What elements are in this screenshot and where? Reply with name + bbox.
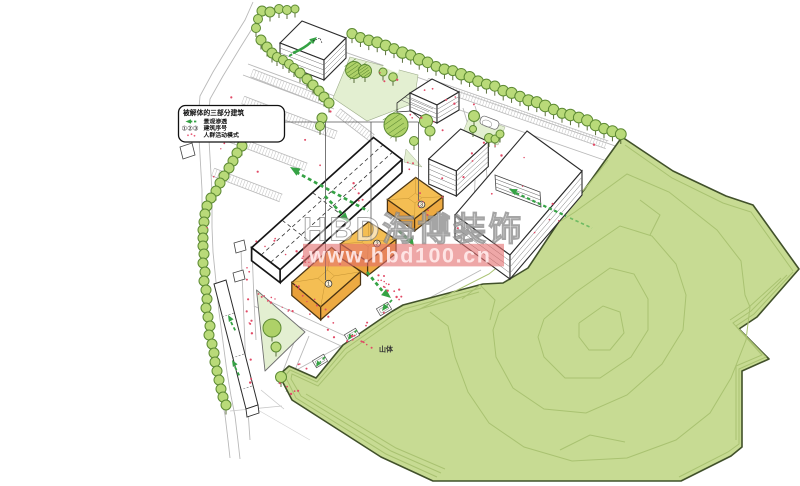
svg-text:3: 3	[420, 203, 423, 209]
svg-text:www.hbd100.cn: www.hbd100.cn	[308, 244, 491, 268]
svg-text:①②③: ①②③	[182, 125, 199, 132]
svg-text:人群活动模式: 人群活动模式	[204, 131, 239, 139]
svg-text:景观渗透: 景观渗透	[203, 118, 228, 126]
svg-text:建筑序号: 建筑序号	[203, 124, 228, 132]
svg-text:1: 1	[327, 282, 330, 288]
svg-text:被解体的三部分建筑: 被解体的三部分建筑	[183, 108, 244, 117]
svg-text:HBD海博装饰: HBD海博装饰	[303, 210, 524, 247]
svg-text:山体: 山体	[379, 345, 394, 354]
